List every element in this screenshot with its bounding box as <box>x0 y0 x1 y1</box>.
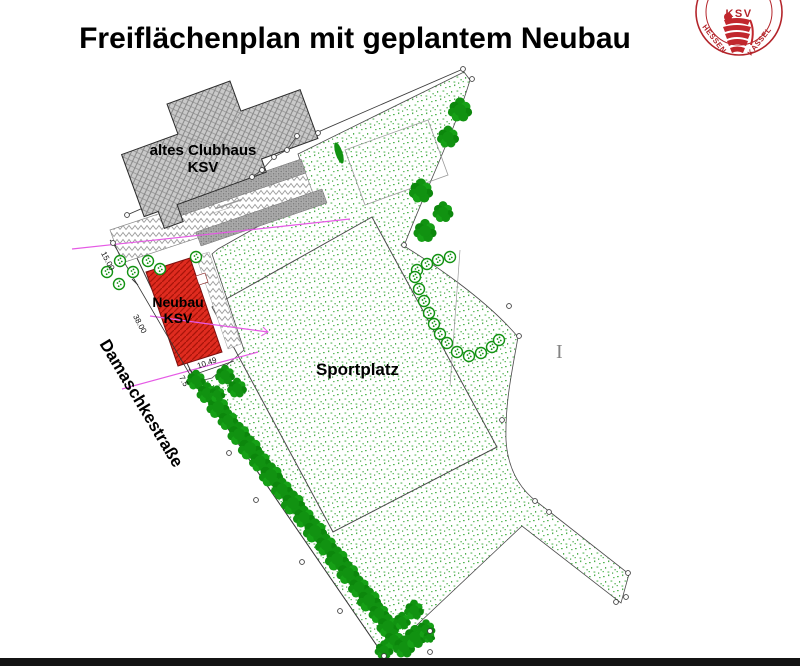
bottom-divider-bar <box>0 658 800 666</box>
slide-canvas: Freiflächenplan mit geplantem Neubau alt… <box>0 0 800 668</box>
old-clubhouse-label-line2: KSV <box>128 159 278 176</box>
ksv-hessen-kassel-logo: KSV HESSEN KASSEL <box>692 0 792 62</box>
old-clubhouse-label: altes Clubhaus KSV <box>128 142 278 176</box>
new-building-label-line2: KSV <box>138 310 218 326</box>
new-building-label-line1: Neubau <box>138 294 218 310</box>
sports-field-label: Sportplatz <box>300 360 415 380</box>
text-cursor-artifact: I <box>556 341 563 364</box>
page-title: Freiflächenplan mit geplantem Neubau <box>70 22 640 56</box>
old-clubhouse-label-line1: altes Clubhaus <box>128 142 278 159</box>
new-building-label: Neubau KSV <box>138 294 218 326</box>
site-plan-drawing <box>0 0 800 668</box>
